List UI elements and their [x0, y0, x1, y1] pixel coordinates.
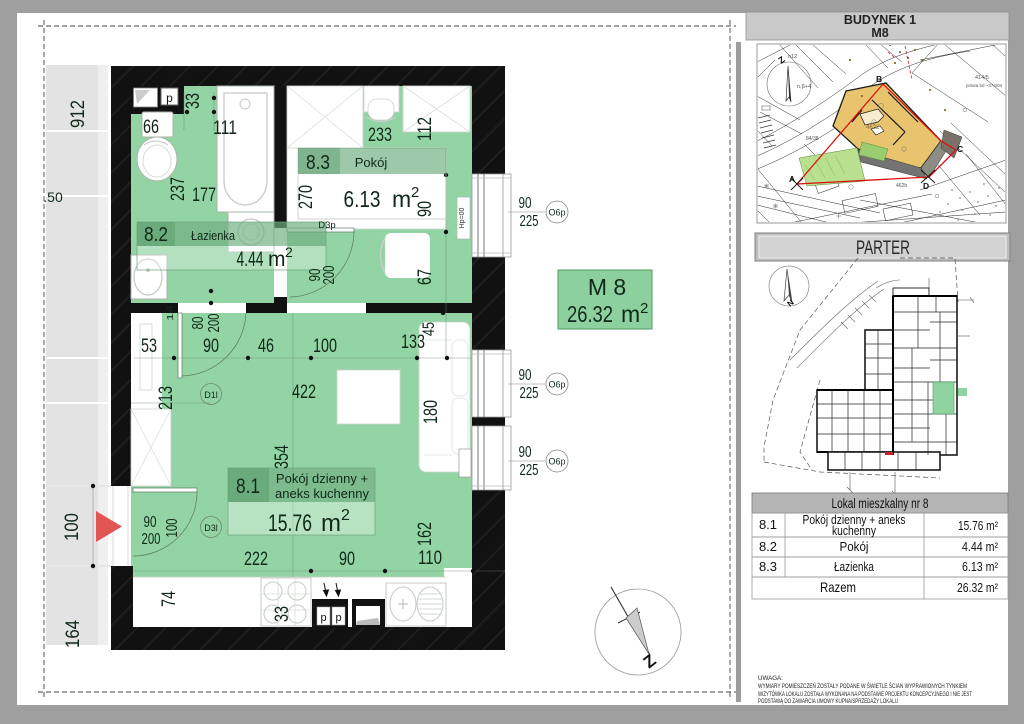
svg-text:2: 2 — [411, 184, 419, 201]
svg-text:111: 111 — [213, 118, 237, 139]
svg-text:2: 2 — [341, 507, 350, 524]
svg-text:WYMIARY POMIESZCZEŃ ZOSTAŁY PO: WYMIARY POMIESZCZEŃ ZOSTAŁY PODANE W ŚWI… — [758, 682, 967, 690]
svg-text:M 8: M 8 — [588, 274, 626, 300]
svg-text:D1l: D1l — [204, 390, 218, 400]
svg-text:6.13: 6.13 — [344, 186, 381, 212]
svg-text:8.2: 8.2 — [144, 224, 168, 246]
svg-text:225: 225 — [520, 462, 539, 479]
svg-text:UWAGA:: UWAGA: — [758, 675, 783, 682]
svg-text:O6p: O6p — [548, 380, 565, 390]
svg-text:112: 112 — [415, 117, 436, 141]
svg-text:14: 14 — [165, 305, 175, 321]
svg-text:aneks kuchenny: aneks kuchenny — [275, 486, 369, 501]
svg-text:100: 100 — [62, 513, 83, 541]
svg-text:kuchenny: kuchenny — [832, 523, 876, 538]
svg-text:C: C — [957, 144, 963, 154]
svg-text:177: 177 — [192, 185, 216, 206]
svg-text:m: m — [392, 186, 411, 212]
svg-text:n,β+4: n,β+4 — [797, 84, 811, 90]
svg-text:Pokój: Pokój — [840, 539, 869, 554]
svg-text:90: 90 — [339, 549, 355, 570]
svg-text:270: 270 — [296, 185, 317, 209]
svg-text:164: 164 — [63, 620, 84, 648]
svg-text:15.76: 15.76 — [268, 510, 312, 537]
svg-text:15.76 m²: 15.76 m² — [958, 518, 999, 533]
svg-text:p: p — [166, 91, 173, 105]
svg-text:225: 225 — [520, 213, 539, 230]
svg-text:225: 225 — [520, 385, 539, 402]
svg-text:Łazienka: Łazienka — [191, 228, 236, 243]
svg-text:414/5: 414/5 — [975, 75, 989, 81]
svg-text:26.32: 26.32 — [567, 301, 613, 327]
svg-text:O6p: O6p — [548, 457, 565, 467]
svg-text:200: 200 — [142, 531, 161, 548]
svg-text:422: 422 — [292, 382, 316, 403]
svg-text:Pokój: Pokój — [355, 155, 388, 170]
svg-text:.50: .50 — [43, 189, 63, 205]
svg-text:PARTER: PARTER — [856, 238, 910, 259]
svg-text:90: 90 — [519, 367, 532, 384]
svg-text:m: m — [621, 301, 640, 327]
svg-text:90: 90 — [203, 336, 219, 357]
svg-text:2: 2 — [285, 244, 293, 260]
svg-text:46: 46 — [258, 336, 274, 357]
svg-text:D3p: D3p — [318, 220, 335, 231]
svg-text:Razem: Razem — [820, 579, 856, 595]
svg-text:200: 200 — [206, 313, 223, 332]
svg-text:4.44 m²: 4.44 m² — [962, 539, 999, 554]
svg-text:110: 110 — [418, 548, 442, 569]
svg-text:8.1: 8.1 — [236, 475, 260, 498]
svg-text:90: 90 — [519, 195, 532, 212]
svg-text:B: B — [876, 74, 882, 84]
svg-text:WIZYTÓWKA LOKALU ZOSTAŁA WYKON: WIZYTÓWKA LOKALU ZOSTAŁA WYKONANA NA POD… — [758, 691, 972, 698]
svg-text:90: 90 — [144, 514, 157, 531]
svg-text:233: 233 — [368, 125, 392, 146]
svg-text:90: 90 — [519, 444, 532, 461]
svg-text:180: 180 — [421, 400, 442, 424]
svg-text:237: 237 — [168, 177, 189, 201]
svg-text:M8: M8 — [871, 26, 888, 40]
svg-text:8.1: 8.1 — [759, 517, 777, 532]
svg-text:O6p: O6p — [548, 208, 565, 218]
svg-text:BUDYNEK 1: BUDYNEK 1 — [844, 13, 916, 27]
svg-text:prawa bd ~374/04: prawa bd ~374/04 — [966, 83, 1003, 88]
svg-text:67: 67 — [415, 269, 436, 285]
svg-text:D: D — [923, 181, 929, 191]
svg-text:2: 2 — [640, 300, 648, 317]
svg-text:80: 80 — [190, 316, 207, 329]
svg-text:6.13 m²: 6.13 m² — [962, 559, 999, 574]
svg-text:8.3: 8.3 — [759, 559, 777, 574]
svg-text:74: 74 — [159, 591, 180, 607]
svg-text:Łazienka: Łazienka — [834, 559, 875, 574]
svg-text:n12: n12 — [788, 54, 797, 60]
svg-text:462b: 462b — [896, 183, 907, 189]
svg-text:33: 33 — [272, 606, 293, 622]
svg-text:8.2: 8.2 — [759, 539, 777, 554]
svg-text:84/38: 84/38 — [806, 136, 819, 142]
svg-text:33: 33 — [183, 93, 204, 109]
svg-text:912: 912 — [68, 100, 89, 128]
svg-text:200: 200 — [321, 265, 338, 284]
svg-text:Hp=00: Hp=00 — [459, 207, 466, 228]
svg-text:90: 90 — [415, 201, 436, 217]
svg-text:Lokal mieszkalny nr 8: Lokal mieszkalny nr 8 — [832, 496, 929, 511]
svg-text:4.44: 4.44 — [237, 248, 264, 271]
svg-text:m: m — [321, 510, 341, 537]
svg-text:100: 100 — [164, 518, 181, 537]
svg-text:p: p — [335, 612, 341, 624]
svg-text:m: m — [268, 248, 286, 271]
svg-text:45: 45 — [419, 322, 438, 336]
svg-text:100: 100 — [313, 336, 337, 357]
svg-text:213: 213 — [156, 386, 177, 410]
svg-text:4622: 4622 — [866, 125, 880, 131]
svg-text:D3l: D3l — [204, 523, 218, 533]
svg-text:222: 222 — [244, 549, 268, 570]
svg-text:PODSTAWĄ DO ZAWARCIA UMOWY KUP: PODSTAWĄ DO ZAWARCIA UMOWY KUPNA/SPRZEDA… — [758, 698, 898, 705]
svg-text:66: 66 — [143, 117, 159, 138]
svg-text:26.32 m²: 26.32 m² — [957, 580, 999, 595]
svg-text:p: p — [320, 612, 326, 624]
svg-text:162: 162 — [415, 522, 436, 546]
svg-text:53: 53 — [141, 336, 157, 357]
svg-text:Pokój dzienny +: Pokój dzienny + — [276, 471, 368, 486]
svg-text:354: 354 — [272, 445, 293, 469]
svg-text:8.3: 8.3 — [306, 152, 330, 174]
